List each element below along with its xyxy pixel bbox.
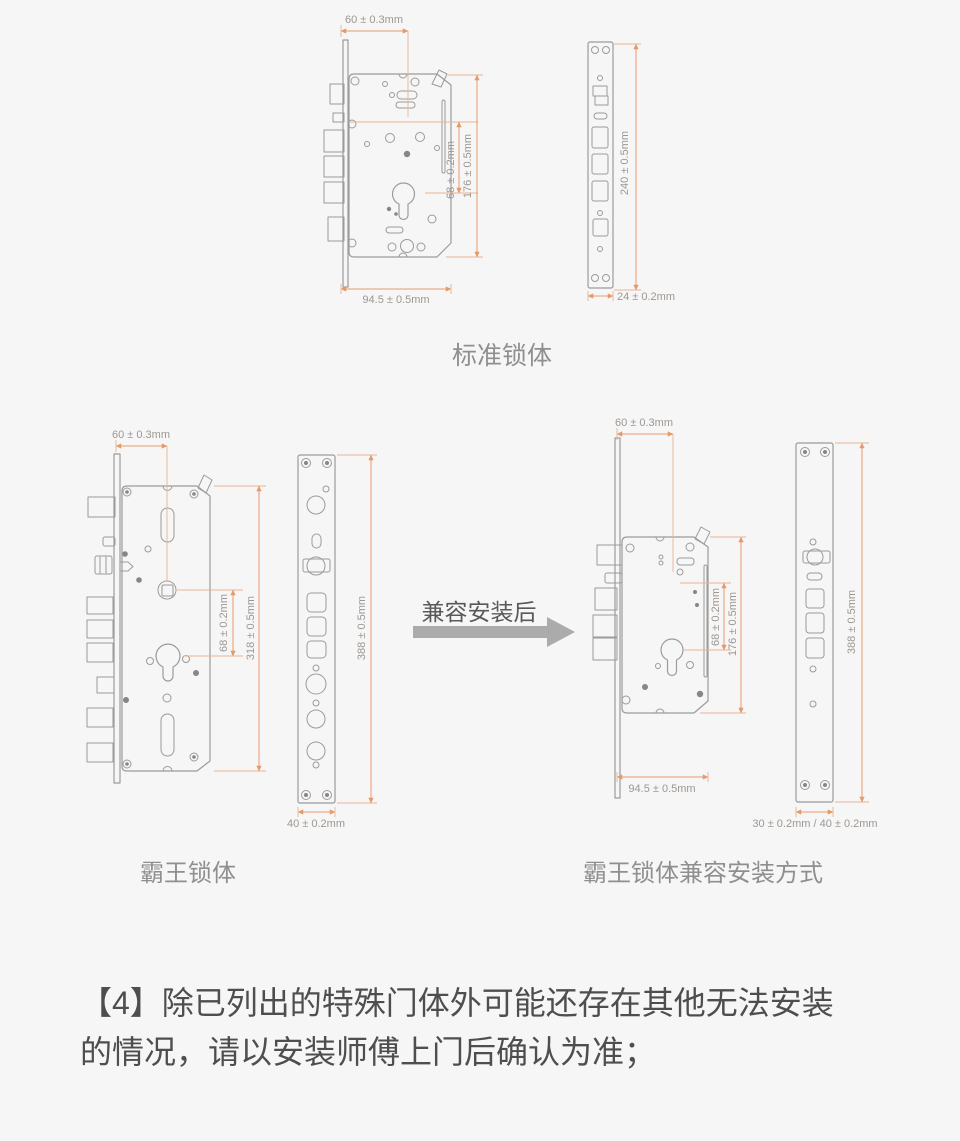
- standard-faceplate-drawing: [588, 42, 613, 288]
- standard-lock-body-drawing: [324, 40, 451, 287]
- compatible-keyhole: [661, 639, 683, 676]
- dim-compatible-faceplate-height: 388 ± 0.5mm: [845, 577, 859, 667]
- overlord-faceplate-drawing: [298, 455, 335, 803]
- diagram-page: 60 ± 0.3mm 68 ± 0.2mm 176 ± 0.5mm 94.5 ±…: [0, 0, 960, 1141]
- dim-compatible-hole-spacing: 68 ± 0.2mm: [709, 572, 723, 662]
- dim-standard-body-height: 176 ± 0.5mm: [461, 121, 475, 211]
- overlord-lock-body-drawing: [87, 454, 212, 783]
- dim-overlord-hole-spacing: 68 ± 0.2mm: [217, 578, 231, 668]
- compatible-faceplate-drawing: [796, 443, 833, 802]
- footnote-line-2: 的情况，请以安装师傅上门后确认为准；: [80, 1028, 890, 1077]
- dim-overlord-top-width: 60 ± 0.3mm: [86, 428, 196, 442]
- dim-compatible-faceplate-width: 30 ± 0.2mm / 40 ± 0.2mm: [735, 817, 895, 831]
- overlord-keyhole: [156, 644, 180, 681]
- dim-standard-faceplate-width: 24 ± 0.2mm: [617, 290, 707, 304]
- dim-overlord-faceplate-width: 40 ± 0.2mm: [261, 817, 371, 831]
- dim-compatible-bottom-width: 94.5 ± 0.5mm: [607, 782, 717, 796]
- dim-compatible-body-height: 176 ± 0.5mm: [726, 579, 740, 669]
- footnote-text: 【4】除已列出的特殊门体外可能还存在其他无法安装 的情况，请以安装师傅上门后确认…: [80, 979, 890, 1077]
- compatible-dimension-lines: [617, 428, 869, 817]
- standard-lock-label: 标准锁体: [402, 336, 602, 372]
- dim-overlord-body-height: 318 ± 0.5mm: [244, 583, 258, 673]
- compatible-lock-label: 霸王锁体兼容安装方式: [543, 853, 863, 888]
- dim-standard-faceplate-height: 240 ± 0.5mm: [618, 118, 632, 208]
- compatible-arrow-label: 兼容安装后: [399, 593, 559, 627]
- dim-standard-top-width: 60 ± 0.3mm: [319, 13, 429, 27]
- dim-compatible-top-width: 60 ± 0.3mm: [589, 416, 699, 430]
- dim-standard-hole-spacing: 68 ± 0.2mm: [444, 125, 458, 215]
- lock-diagram-canvas: [0, 0, 960, 1141]
- dim-overlord-faceplate-height: 388 ± 0.5mm: [355, 583, 369, 673]
- dim-standard-bottom-width: 94.5 ± 0.5mm: [341, 293, 451, 307]
- footnote-line-1: 【4】除已列出的特殊门体外可能还存在其他无法安装: [80, 979, 890, 1028]
- standard-dimension-lines: [341, 25, 641, 301]
- compatible-lock-body-drawing: [593, 438, 710, 798]
- overlord-lock-label: 霸王锁体: [88, 853, 288, 888]
